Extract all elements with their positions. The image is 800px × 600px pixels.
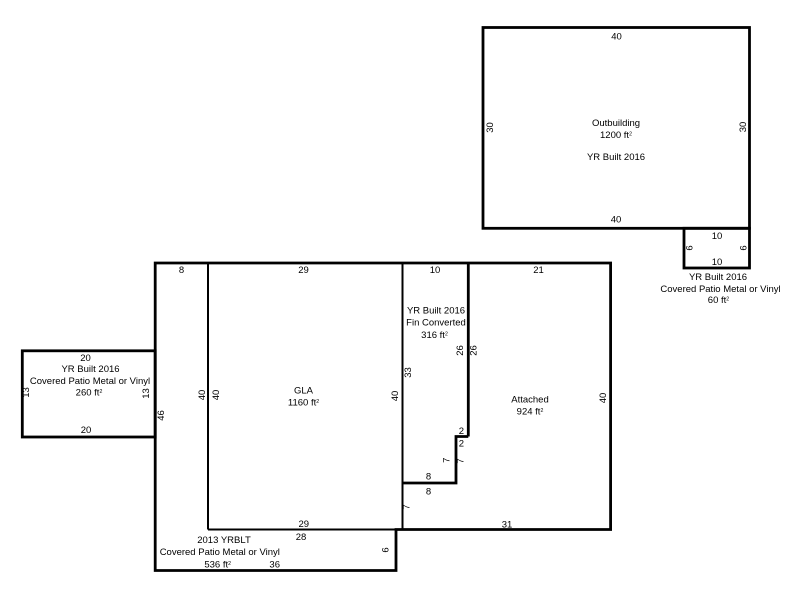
svg-text:924 ft2: 924 ft2	[517, 406, 544, 417]
svg-text:40: 40	[611, 32, 622, 43]
svg-text:8: 8	[426, 487, 431, 498]
svg-text:316 ft2: 316 ft2	[421, 330, 448, 341]
svg-text:7: 7	[402, 504, 413, 509]
svg-text:7: 7	[441, 458, 452, 463]
svg-text:36: 36	[269, 559, 280, 570]
svg-text:7: 7	[456, 458, 467, 463]
svg-text:29: 29	[299, 519, 310, 530]
svg-text:20: 20	[80, 353, 91, 364]
svg-text:Covered Patio Metal or Vinyl: Covered Patio Metal or Vinyl	[30, 376, 150, 387]
svg-text:30: 30	[485, 122, 496, 133]
svg-text:260 ft2: 260 ft2	[76, 387, 103, 398]
svg-text:31: 31	[502, 519, 513, 530]
svg-text:6: 6	[738, 245, 749, 250]
svg-text:2: 2	[459, 438, 464, 449]
svg-text:6: 6	[380, 547, 391, 552]
svg-text:536 ft2: 536 ft2	[204, 559, 231, 570]
svg-text:YR Built 2016: YR Built 2016	[587, 152, 645, 163]
svg-text:33: 33	[403, 367, 414, 378]
svg-text:Fin Converted: Fin Converted	[406, 318, 466, 329]
svg-text:29: 29	[298, 265, 309, 276]
svg-text:Outbuilding: Outbuilding	[592, 118, 640, 129]
svg-text:30: 30	[738, 122, 749, 133]
svg-text:10: 10	[430, 265, 441, 276]
svg-text:46: 46	[156, 410, 167, 421]
svg-text:YR Built 2016: YR Built 2016	[689, 272, 747, 283]
svg-text:1160 ft2: 1160 ft2	[288, 397, 319, 408]
svg-text:21: 21	[533, 265, 544, 276]
svg-text:40: 40	[197, 390, 208, 401]
svg-text:40: 40	[611, 214, 622, 225]
svg-text:20: 20	[81, 425, 92, 436]
svg-text:YR Built 2016: YR Built 2016	[407, 305, 465, 316]
svg-text:8: 8	[179, 265, 184, 276]
svg-text:40: 40	[598, 393, 609, 404]
svg-text:Attached: Attached	[511, 394, 549, 405]
svg-text:6: 6	[684, 245, 695, 250]
svg-text:2013 YRBLT: 2013 YRBLT	[197, 535, 251, 546]
svg-text:40: 40	[390, 391, 401, 402]
svg-text:60 ft2: 60 ft2	[708, 295, 730, 306]
svg-text:26: 26	[455, 345, 466, 356]
svg-text:8: 8	[426, 471, 431, 482]
svg-text:26: 26	[468, 345, 479, 356]
svg-text:YR Built 2016: YR Built 2016	[61, 364, 119, 375]
svg-text:40: 40	[211, 390, 222, 401]
svg-text:2: 2	[459, 426, 464, 437]
svg-text:10: 10	[712, 231, 723, 242]
svg-text:1200 ft2: 1200 ft2	[600, 130, 632, 141]
svg-text:28: 28	[296, 532, 307, 543]
svg-text:13: 13	[141, 388, 152, 399]
svg-text:GLA: GLA	[294, 385, 314, 396]
svg-text:Covered Patio Metal or Vinyl: Covered Patio Metal or Vinyl	[160, 547, 280, 558]
svg-text:13: 13	[21, 387, 32, 398]
svg-text:Covered Patio Metal or Vinyl: Covered Patio Metal or Vinyl	[660, 284, 780, 295]
svg-text:10: 10	[712, 257, 723, 268]
